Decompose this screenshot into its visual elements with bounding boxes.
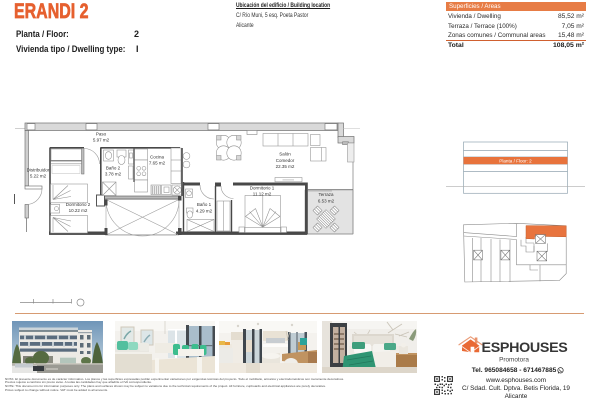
svg-text:Promotora: Promotora (499, 357, 529, 364)
svg-text:ESPHOUSES: ESPHOUSES (482, 340, 568, 355)
